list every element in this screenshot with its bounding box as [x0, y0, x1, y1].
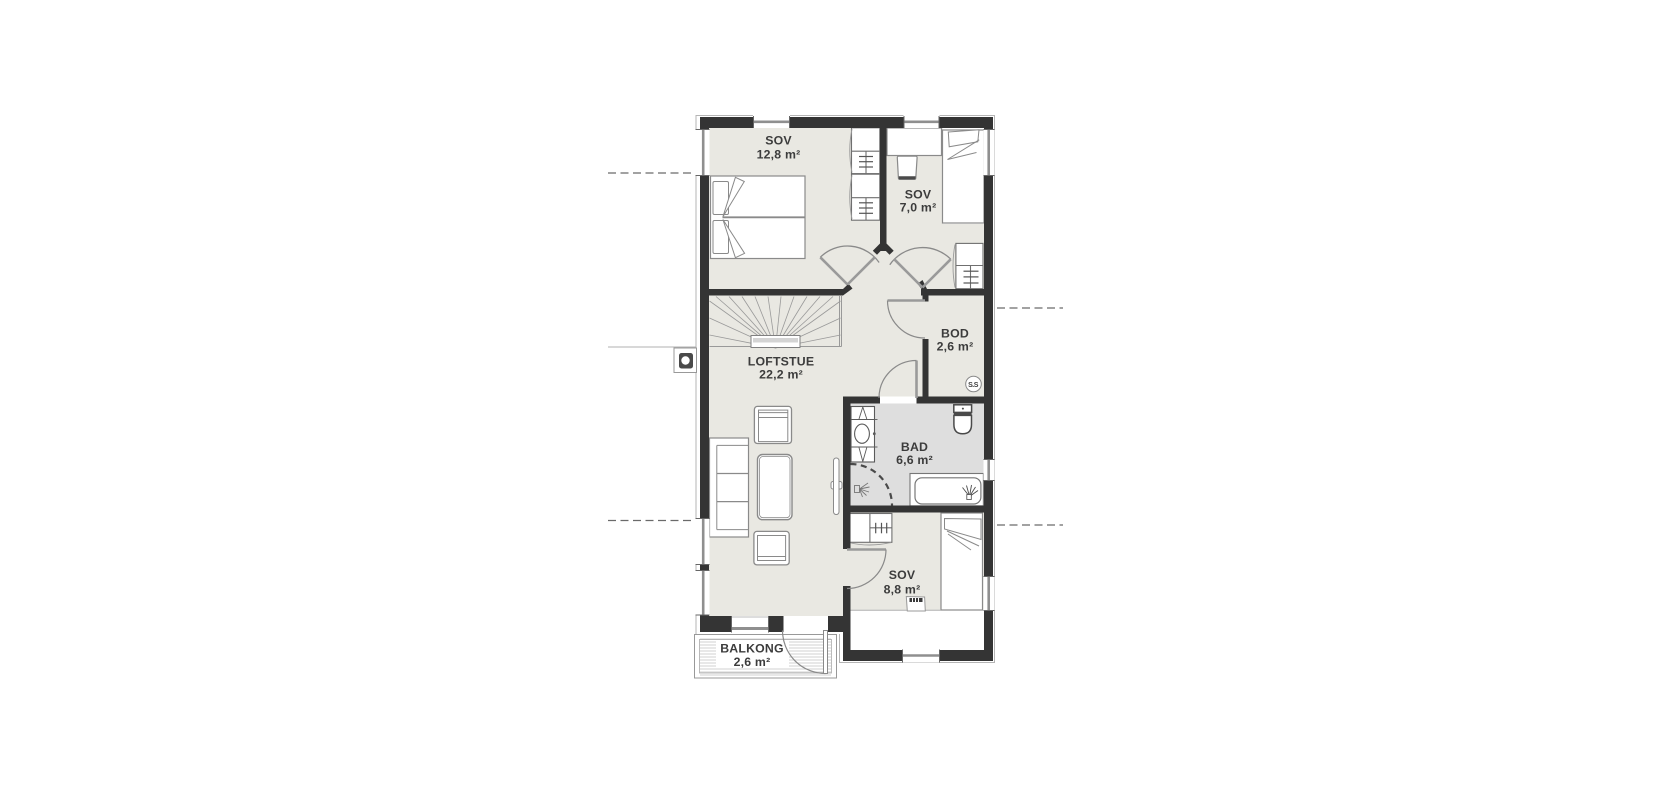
svg-text:BOD: BOD: [941, 327, 969, 341]
svg-text:6,6 m²: 6,6 m²: [896, 453, 933, 467]
svg-text:BAD: BAD: [901, 440, 928, 454]
svg-text:S.S: S.S: [968, 382, 979, 389]
svg-text:SOV: SOV: [765, 134, 792, 148]
svg-text:2,6 m²: 2,6 m²: [937, 340, 974, 354]
svg-text:7,0 m²: 7,0 m²: [900, 201, 937, 215]
svg-text:2,6 m²: 2,6 m²: [734, 655, 771, 669]
svg-text:8,8 m²: 8,8 m²: [884, 583, 921, 597]
svg-text:22,2 m²: 22,2 m²: [759, 368, 803, 382]
svg-text:BALKONG: BALKONG: [720, 641, 784, 655]
svg-text:SOV: SOV: [889, 568, 916, 582]
svg-text:SOV: SOV: [905, 187, 932, 201]
svg-text:LOFTSTUE: LOFTSTUE: [748, 354, 815, 368]
svg-text:12,8 m²: 12,8 m²: [757, 148, 801, 162]
